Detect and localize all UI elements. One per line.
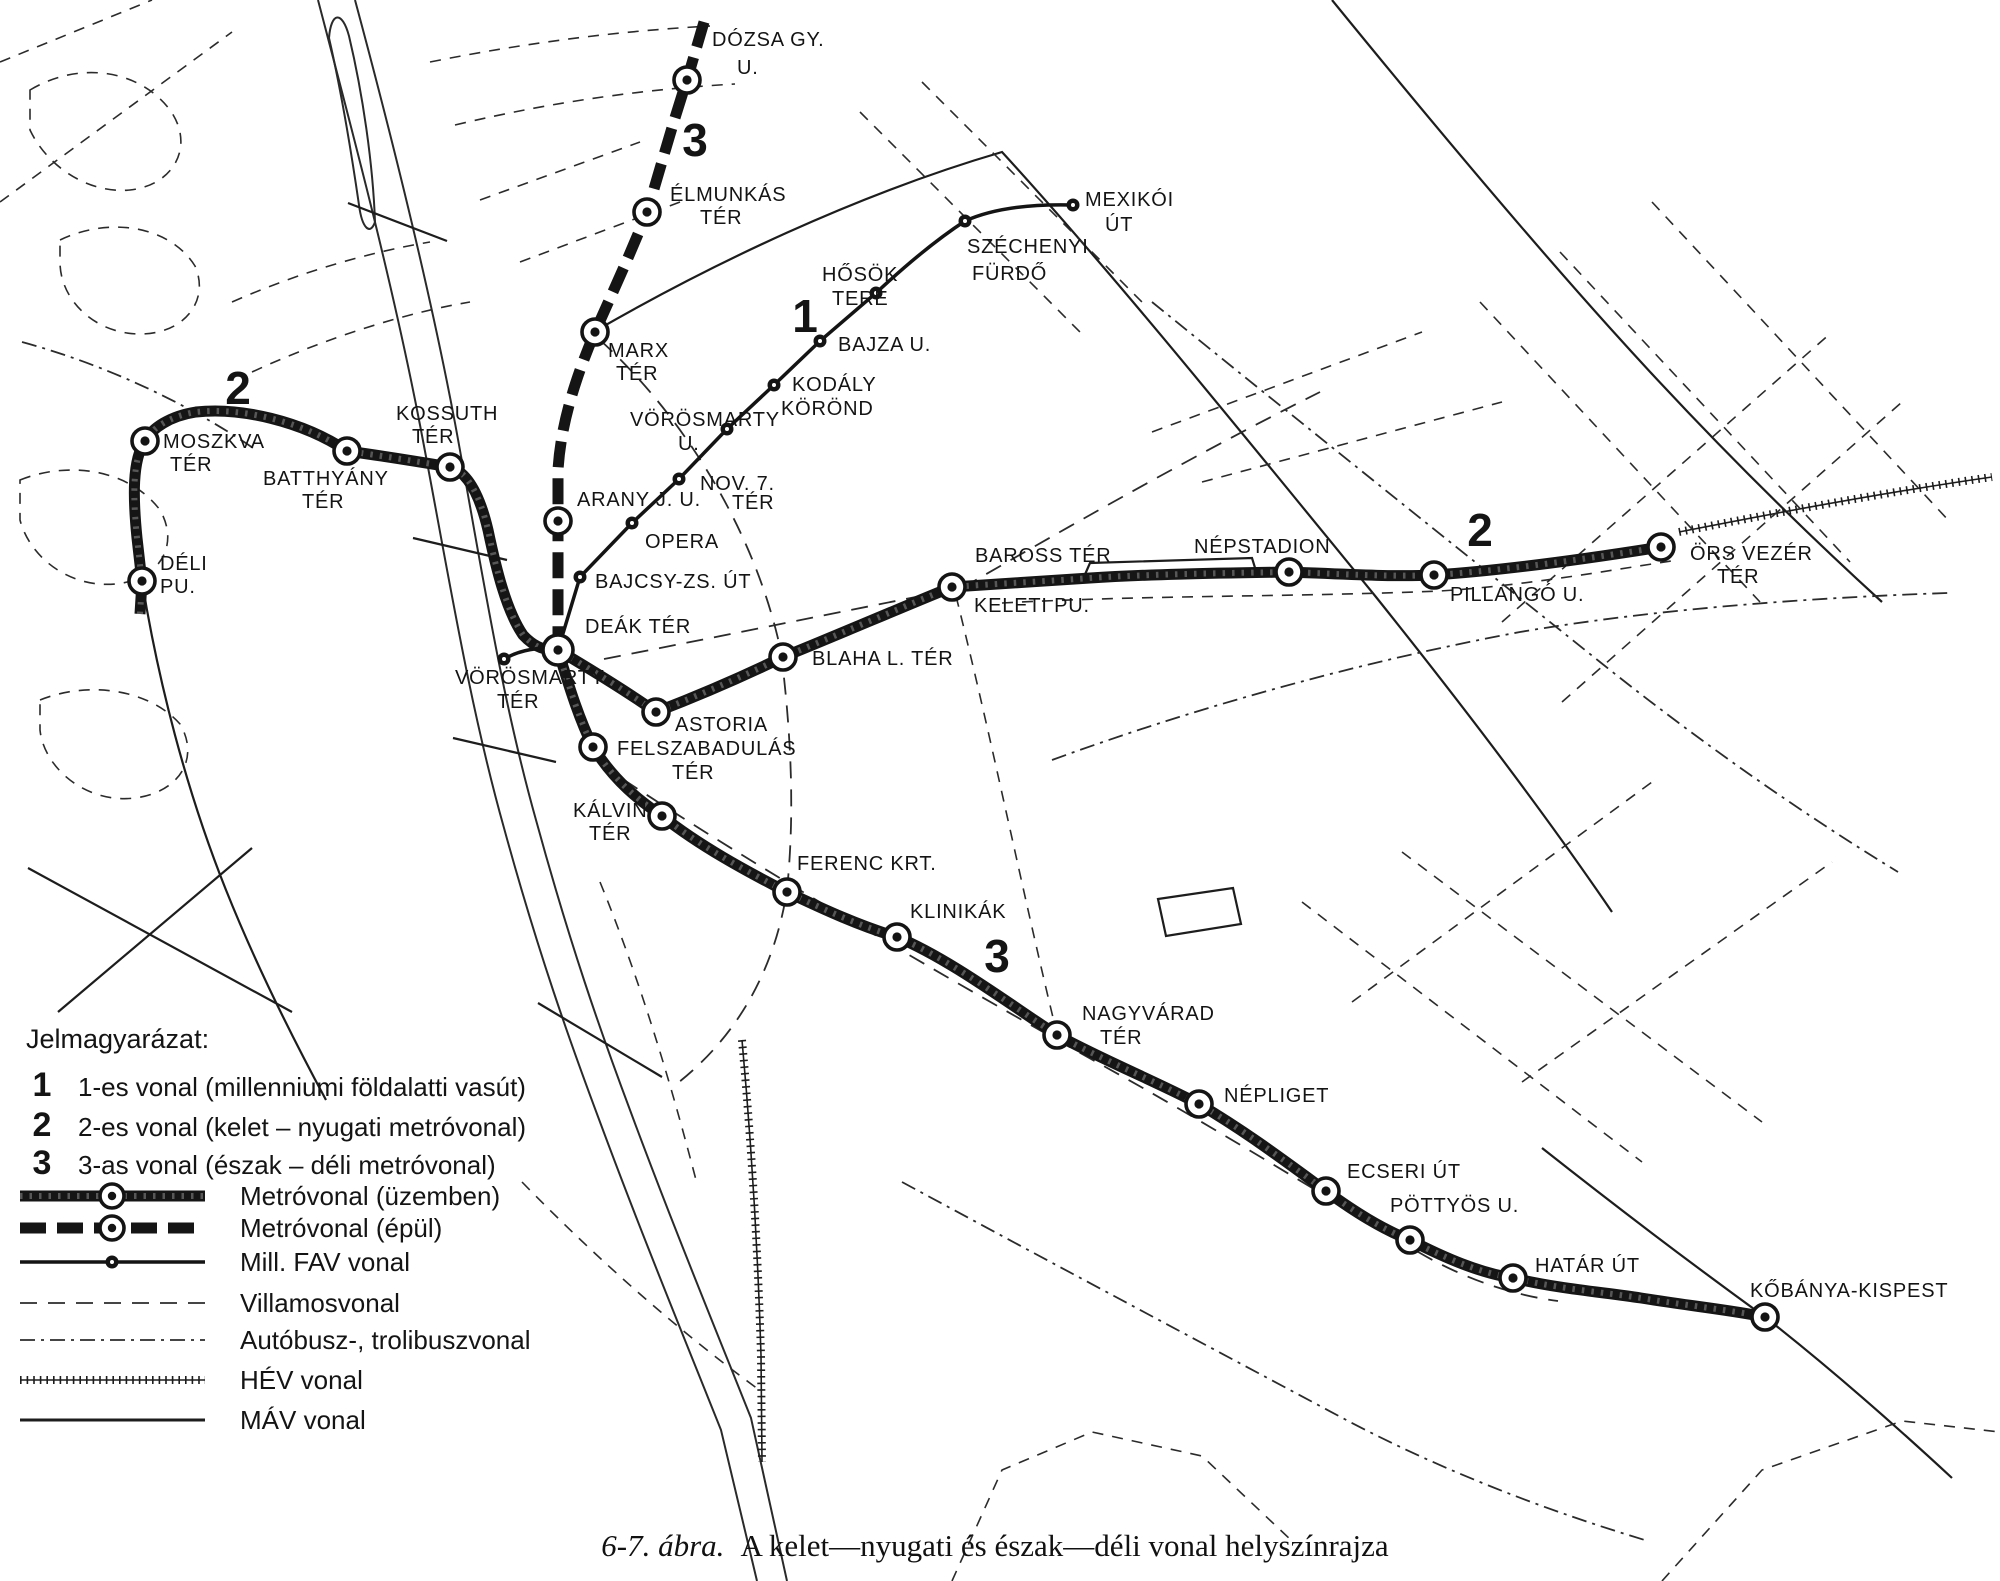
station-label-baross-ter-1: KELETI PU. [974,595,1090,617]
line-number-3-0: 3 [682,114,708,166]
line-number-3-4: 3 [984,930,1010,982]
station-label-hosok-tere: HŐSÖK [822,263,898,286]
station-bajcsy-zs-ut-core [578,575,582,579]
station-elmunkas-ter-dot [642,207,651,216]
station-label-kalvin-ter-1: TÉR [589,822,631,845]
hev-godollo-ticks [1679,477,1992,532]
station-label-ferenc-krt: FERENC KRT. [797,853,937,875]
legend-line-number-1: 1 [33,1066,52,1104]
budapest-metro-map: DÓZSA GY.U.ÉLMUNKÁSTÉRMARXTÉRARANY J. U.… [0,0,2000,1581]
nw-corner-2 [0,32,232,202]
legend-symbol-label-fav: Mill. FAV vonal [240,1247,410,1277]
station-nepstadion-dot [1284,567,1293,576]
station-label-dozsa-gy-u: DÓZSA GY. [712,28,824,51]
station-label-hatar-ut: HATÁR ÚT [1535,1254,1640,1277]
ne-grid-2 [1560,252,1850,562]
se-grid-3 [1522,862,1832,1082]
legend-symbol-label-hev: HÉV vonal [240,1365,363,1395]
station-label-moszkva-ter-1: TÉR [170,453,212,476]
station-label-dozsa-gy-u-1: U. [737,57,759,79]
station-pillango-u-dot [1429,570,1438,579]
station-label-deak-ter: DEÁK TÉR [585,615,691,638]
station-szechenyi-furdo-core [963,219,967,223]
station-label-baross-ter: BAROSS TÉR [975,544,1112,567]
caption-text: A kelet—nyugati és észak—déli vonal hely… [740,1528,1388,1563]
station-opera-core [630,521,634,525]
station-label-klinikak: KLINIKÁK [910,900,1006,923]
station-label-arany-j-u: ARANY J. U. [577,489,701,511]
station-label-astoria: ASTORIA [675,714,768,736]
station-nepliget-dot [1194,1099,1203,1108]
station-label-bajza-u: BAJZA U. [838,334,931,356]
station-labels: DÓZSA GY.U.ÉLMUNKÁSTÉRMARXTÉRARANY J. U.… [160,28,1948,1302]
bus-south [902,1182,1648,1541]
station-label-ors-vezer-ter-1: TÉR [1717,565,1759,588]
ne-grid-3 [1652,202,1950,522]
station-moszkva-ter-dot [140,436,149,445]
boundary-south-2 [1662,1421,2000,1581]
station-deli-pu-dot [137,576,146,585]
legend-line-number-3: 3 [33,1144,52,1182]
street-north-3 [480,142,640,200]
station-astoria-dot [651,707,660,716]
hev-csepel-ticks [742,1040,762,1462]
station-nagyvarad-ter-dot [1052,1030,1061,1039]
station-arany-j-u-dot [553,516,562,525]
station-label-mexikoi-ut-1: ÚT [1105,213,1133,236]
station-marx-ter-dot [590,327,599,336]
mav-ring-east [597,152,1612,912]
bridge-erzsebet [453,738,556,762]
station-label-batthyany-ter-1: TÉR [302,490,344,513]
station-label-nagyvarad-ter-1: TÉR [1100,1026,1142,1049]
station-label-marx-ter: MARX [608,340,669,362]
buda-hill-4 [40,690,188,799]
nw-corner-1 [0,0,152,62]
station-label-ecseri-ut: ECSERI ÚT [1347,1160,1461,1183]
station-label-szechenyi-furdo-1: FÜRDŐ [972,262,1047,285]
road-sw-cross-1 [28,868,292,1012]
tram-ulloi [600,764,1558,1301]
legend-symbol-label-mav: MÁV vonal [240,1405,366,1435]
legend-symbol-station-dot [108,1192,116,1200]
station-deak-ter-dot [553,645,562,654]
station-klinikak-dot [892,932,901,941]
station-blaha-l-ter-dot [778,652,787,661]
bridge-petofi [538,1003,662,1077]
station-label-kobanya-kispest: KŐBÁNYA-KISPEST [1750,1279,1948,1302]
station-pottyos-u-dot [1405,1235,1414,1244]
station-baross-ter-dot [947,582,956,591]
legend-symbol-station-build-dot [108,1224,116,1232]
station-label-vorosmarty-u: VÖRÖSMARTY [630,409,780,431]
stadium-outline [1158,888,1241,936]
figure-caption: 6-7. ábra. A kelet—nyugati és észak—déli… [601,1528,1389,1563]
legend-line-label-1: 1-es vonal (millenniumi földalatti vasút… [78,1072,526,1102]
station-label-kossuth-ter-1: TÉR [412,425,454,448]
station-label-mexikoi-ut: MEXIKÓI [1085,188,1174,211]
bus-east-1 [1052,593,1948,760]
east-street-2 [1202,402,1502,482]
station-label-felszabadulas-ter-1: TÉR [672,761,714,784]
station-label-nepliget: NÉPLIGET [1224,1084,1329,1107]
station-hatar-ut-dot [1508,1273,1517,1282]
map-figure-page: DÓZSA GY.U.ÉLMUNKÁSTÉRMARXTÉRARANY J. U.… [0,0,2000,1581]
mav-northeast [1332,0,1882,602]
station-felszabadulas-ter-dot [588,742,597,751]
station-label-pillango-u: PILLANGÓ U. [1450,583,1584,606]
station-label-deli-pu: DÉLI [160,552,208,575]
station-ecseri-ut-dot [1321,1186,1330,1195]
station-label-elmunkas-ter: ÉLMUNKÁS [670,183,786,206]
legend-line-number-2: 2 [33,1106,52,1144]
station-label-marx-ter-1: TÉR [616,362,658,385]
east-street-1 [1152,332,1422,432]
station-kodaly-korond-core [772,383,776,387]
line-number-2-2: 2 [225,362,251,414]
street-north-1 [430,26,710,62]
mav-deli-south [142,581,326,1100]
station-label-kodaly-korond-1: KÖRÖND [781,398,874,420]
road-sw-cross-2 [58,848,252,1012]
line-number-1-1: 1 [792,290,818,342]
station-ors-vezer-ter-dot [1656,542,1665,551]
station-label-deli-pu-1: PU. [160,576,196,598]
station-batthyany-ter-dot [342,446,351,455]
station-label-nagyvarad-ter: NAGYVÁRAD [1082,1002,1215,1025]
caption-figure-number: 6-7. ábra. [601,1528,724,1563]
buda-hill-2 [60,227,199,334]
station-nov-7-ter-core [677,477,681,481]
station-kossuth-ter-dot [445,462,454,471]
station-mexikoi-ut-core [1071,203,1075,207]
station-label-hosok-tere-1: TERE [832,288,889,310]
legend-symbol-fav-core [110,1260,114,1264]
station-label-kossuth-ter: KOSSUTH [396,403,498,425]
station-label-blaha-l-ter: BLAHA L. TÉR [812,647,954,670]
station-label-nov-7-ter-1: TÉR [732,491,774,514]
riverside-south-street [522,1182,762,1392]
legend-line-label-2: 2-es vonal (kelet – nyugati metróvonal) [78,1112,526,1142]
legend-symbol-label-tram: Villamosvonal [240,1288,400,1318]
station-label-elmunkas-ter-1: TÉR [700,206,742,229]
station-label-opera: OPERA [645,531,719,553]
buda-hill-1 [30,73,181,191]
se-grid-2 [1402,852,1762,1122]
station-ferenc-krt-dot [782,887,791,896]
station-vorosmarty-ter-core [502,657,506,661]
station-label-vorosmarty-ter-1: TÉR [497,690,539,713]
station-label-vorosmarty-ter: VÖRÖSMARTY [455,667,605,689]
station-label-pottyos-u: PÖTTYÖS U. [1390,1195,1519,1217]
station-kobanya-kispest-dot [1760,1312,1769,1321]
legend-symbol-label-metro-open: Metróvonal (üzemben) [240,1181,500,1211]
station-kalvin-ter-dot [657,811,666,820]
pest-south-street [600,882,696,1180]
se-grid-4 [1352,782,1652,1002]
station-label-nepstadion: NÉPSTADION [1194,535,1331,558]
station-dozsa-gy-u-dot [682,75,691,84]
station-label-vorosmarty-u-1: U. [678,433,700,455]
legend: Jelmagyarázat: 11-es vonal (millenniumi … [20,1024,530,1435]
legend-title: Jelmagyarázat: [26,1024,209,1054]
station-label-kodaly-korond: KODÁLY [792,373,876,396]
station-label-batthyany-ter: BATTHYÁNY [263,467,389,490]
station-label-moszkva-ter: MOSZKVA [163,431,265,453]
station-label-kalvin-ter: KÁLVIN [573,799,647,822]
station-label-felszabadulas-ter: FELSZABADULÁS [617,737,796,760]
legend-line-label-3: 3-as vonal (észak – déli metróvonal) [78,1150,496,1180]
se-grid-1 [1302,902,1642,1162]
legend-symbol-label-metro-build: Metróvonal (épül) [240,1213,442,1243]
line-number-2-3: 2 [1467,504,1493,556]
station-label-ors-vezer-ter: ÖRS VEZÉR [1690,542,1813,565]
buda-street-1 [232,242,430,302]
legend-symbol-label-bus: Autóbusz-, trolibuszvonal [240,1325,530,1355]
station-label-bajcsy-zs-ut: BAJCSY-ZS. ÚT [595,570,751,593]
station-bajza-u-core [818,339,822,343]
station-label-szechenyi-furdo: SZÉCHENYI [967,235,1089,258]
